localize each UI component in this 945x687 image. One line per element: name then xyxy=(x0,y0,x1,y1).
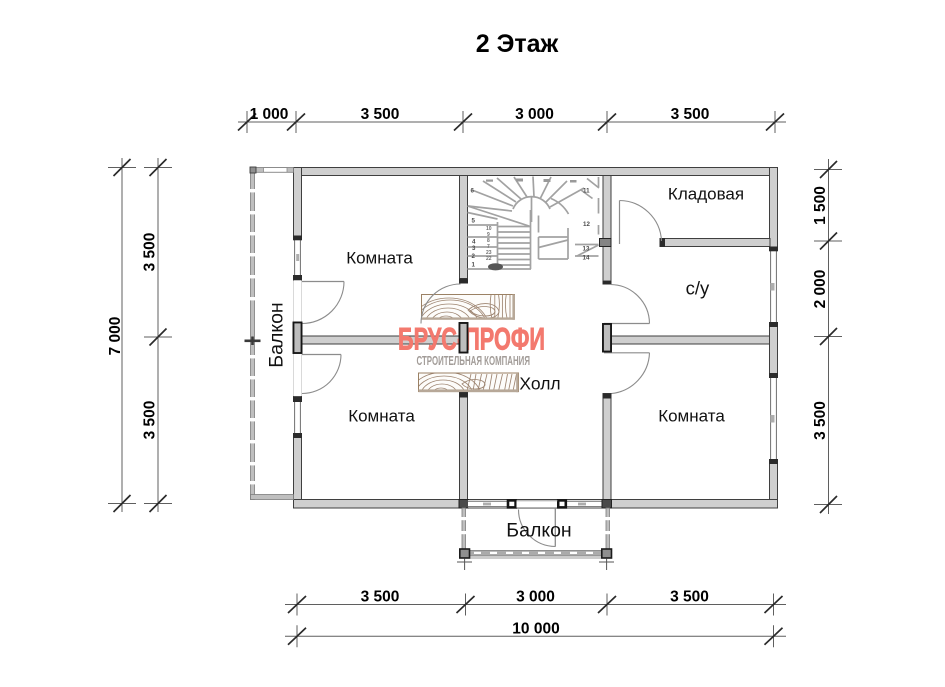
svg-text:3 500: 3 500 xyxy=(670,589,709,606)
svg-text:3 000: 3 000 xyxy=(515,106,554,123)
svg-text:3 500: 3 500 xyxy=(142,233,159,272)
svg-text:Комната: Комната xyxy=(658,407,725,426)
svg-text:Кладовая: Кладовая xyxy=(668,185,744,204)
svg-text:1 000: 1 000 xyxy=(250,106,289,123)
svg-text:Холл: Холл xyxy=(519,374,560,394)
svg-text:7 000: 7 000 xyxy=(107,317,124,356)
svg-text:2: 2 xyxy=(472,253,476,260)
svg-text:13: 13 xyxy=(583,246,590,253)
svg-text:СТРОИТЕЛЬНАЯ КОМПАНИЯ: СТРОИТЕЛЬНАЯ КОМПАНИЯ xyxy=(417,354,531,368)
svg-text:3 500: 3 500 xyxy=(812,401,829,440)
svg-text:14: 14 xyxy=(583,255,590,262)
svg-text:3 500: 3 500 xyxy=(361,106,400,123)
svg-text:12: 12 xyxy=(583,221,590,228)
svg-text:5: 5 xyxy=(472,218,476,225)
svg-text:6: 6 xyxy=(471,188,475,195)
svg-text:3 000: 3 000 xyxy=(516,589,555,606)
svg-text:1 500: 1 500 xyxy=(812,186,829,225)
svg-text:с/у: с/у xyxy=(686,278,710,299)
svg-text:БРУС-ПРОФИ: БРУС-ПРОФИ xyxy=(398,321,545,357)
svg-text:2 000: 2 000 xyxy=(812,270,829,309)
svg-text:22: 22 xyxy=(486,256,492,262)
svg-text:Балкон: Балкон xyxy=(506,520,571,542)
svg-text:4: 4 xyxy=(472,239,476,246)
svg-text:Балкон: Балкон xyxy=(266,302,288,367)
svg-text:3 500: 3 500 xyxy=(361,589,400,606)
svg-text:2 Этаж: 2 Этаж xyxy=(476,30,559,58)
svg-text:10 000: 10 000 xyxy=(512,621,559,638)
svg-text:1: 1 xyxy=(472,262,476,269)
svg-text:Комната: Комната xyxy=(348,407,415,426)
svg-text:3: 3 xyxy=(472,245,476,252)
svg-text:11: 11 xyxy=(583,188,590,195)
svg-text:3 500: 3 500 xyxy=(671,106,710,123)
svg-text:Комната: Комната xyxy=(346,249,413,268)
svg-text:3 500: 3 500 xyxy=(142,401,159,440)
